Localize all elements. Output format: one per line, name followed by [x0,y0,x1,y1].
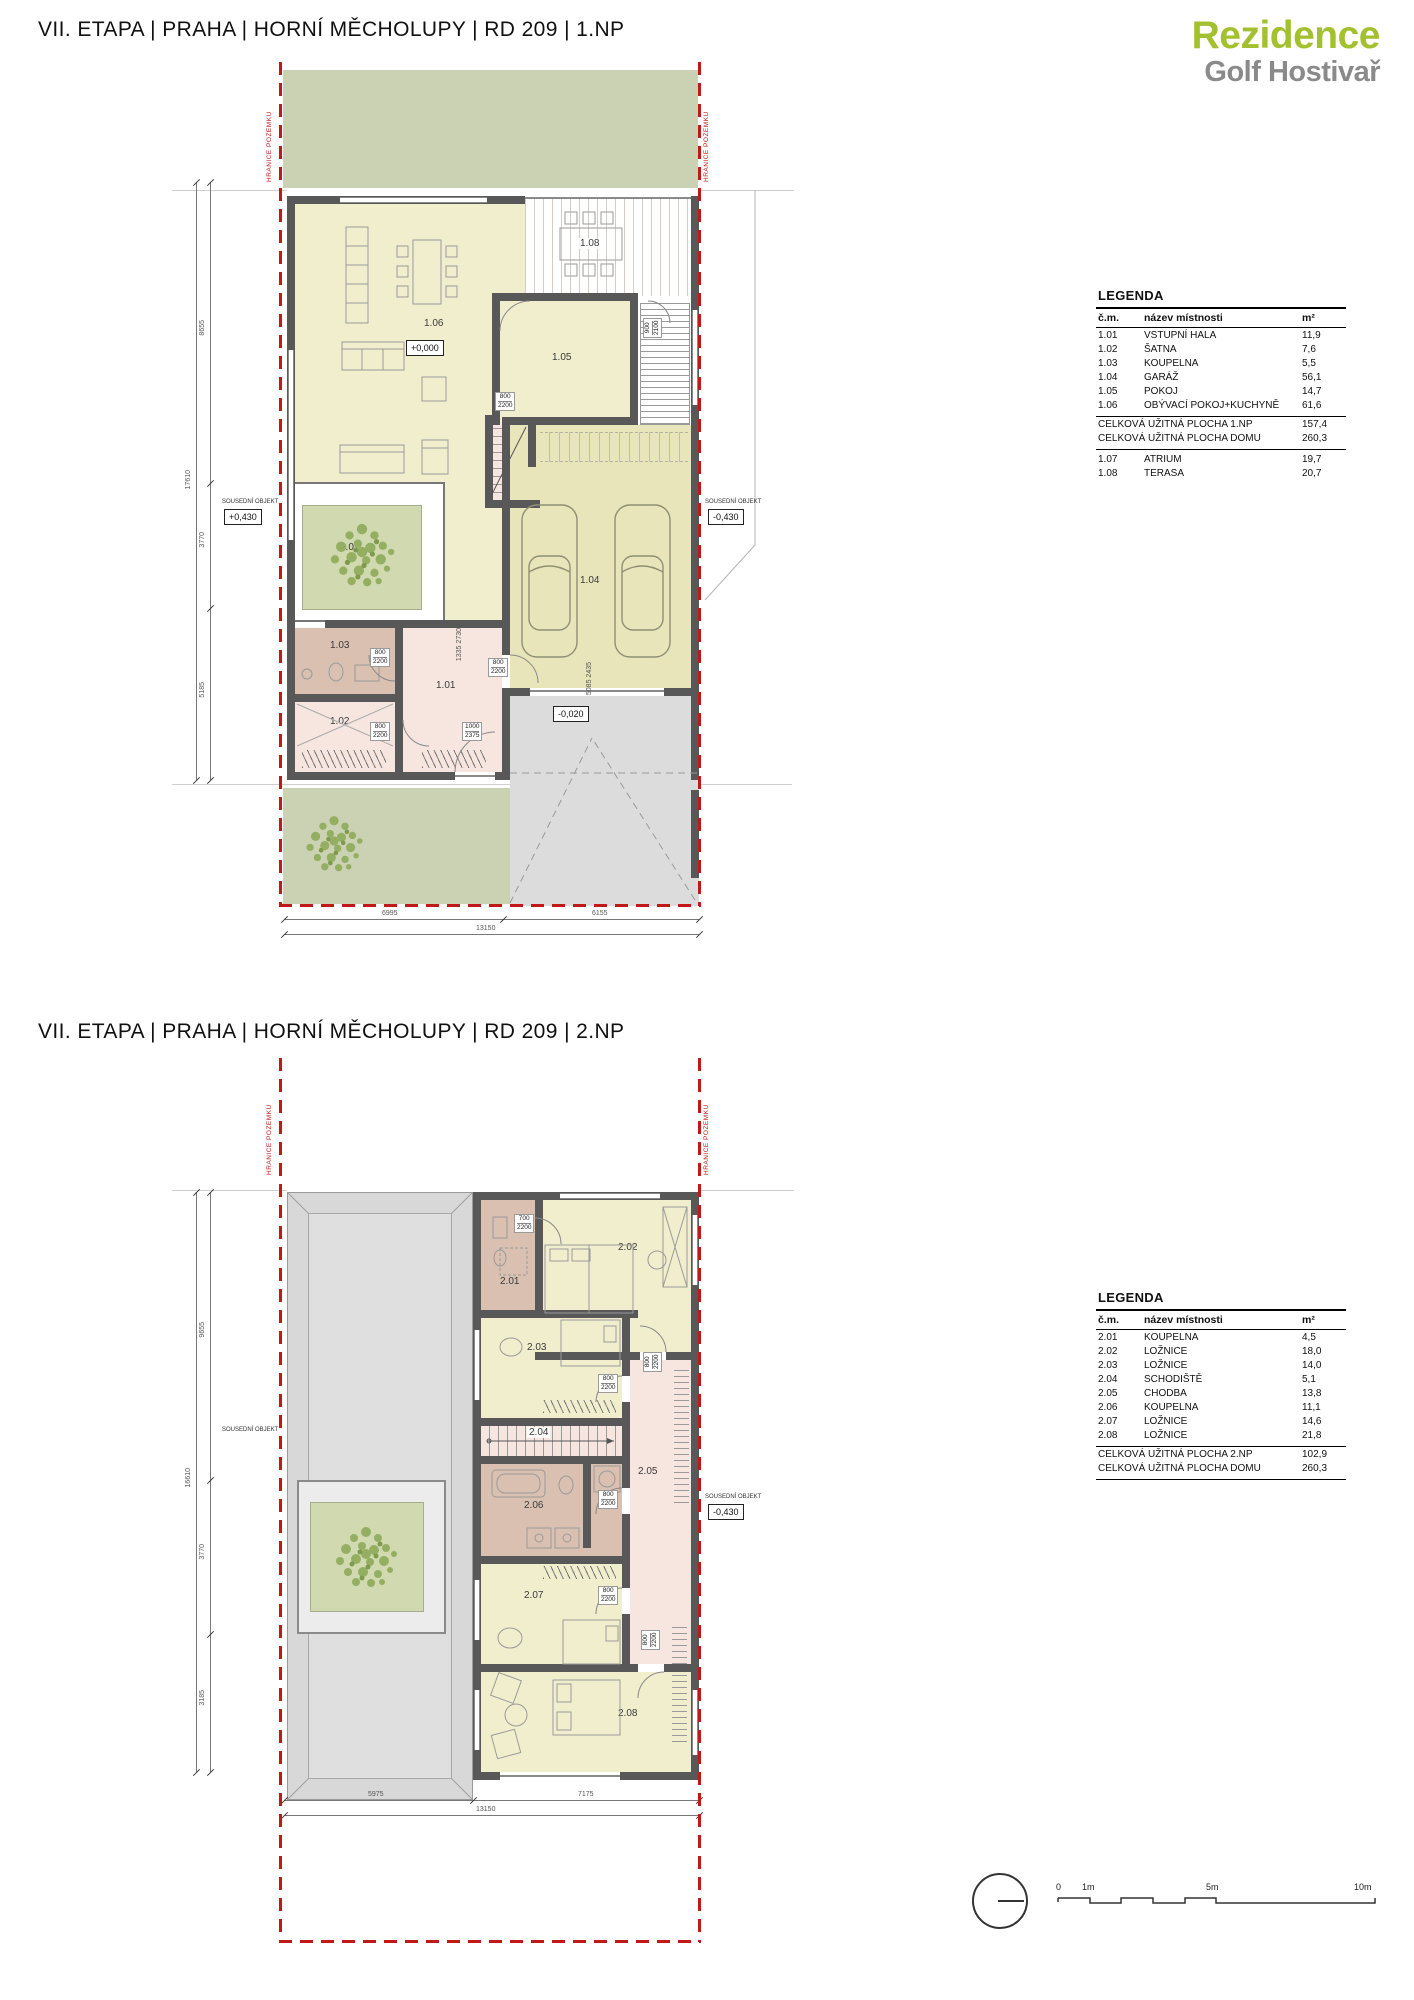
legend-row: 1.04GARÁŽ56,1 [1096,370,1346,384]
legend-row: 2.07LOŽNICE14,6 [1096,1414,1346,1428]
scale-tick-label: 10m [1354,1882,1372,1892]
level-box-zero: +0,000 [406,340,444,356]
door-size-label: 8002200 [495,392,515,411]
legend-row: 2.03LOŽNICE14,0 [1096,1358,1346,1372]
boundary-label-left: HRANICE POZEMKU [266,1085,273,1175]
plan1-linework [180,60,780,960]
legend-total-row: CELKOVÁ UŽITNÁ PLOCHA 1.NP157,4 [1096,416,1346,431]
brand-logo: Rezidence Golf Hostivař [1192,16,1380,87]
level-box-right: -0,430 [708,1504,744,1520]
north-symbol [972,1873,1028,1929]
door-size-label: 10002375 [462,722,482,741]
legend-total-row: CELKOVÁ UŽITNÁ PLOCHA DOMU260,3 [1096,431,1346,445]
plan2-title: VII. ETAPA | PRAHA | HORNÍ MĚCHOLUPY | R… [38,1020,624,1044]
legend-row: 2.06KOUPELNA11,1 [1096,1400,1346,1414]
level-box-left: +0,430 [224,509,262,525]
legend-row: 2.08LOŽNICE21,8 [1096,1428,1346,1442]
level-box-right: -0,430 [708,509,744,525]
door-size-label: 8002200 [598,1374,618,1393]
door-size-label: 8002200 [643,1352,662,1372]
legend-1np: LEGENDA č.m. název místnosti m² 1.01VSTU… [1096,288,1346,481]
scale-bar: 0 1m 5m 10m [1058,1882,1378,1914]
legend-row: 1.03KOUPELNA5,5 [1096,356,1346,370]
legend-row: 1.05POKOJ14,7 [1096,384,1346,398]
legend-footer-rule [1096,1475,1346,1480]
legend-row: 2.01KOUPELNA4,5 [1096,1330,1346,1344]
property-boundary-bottom [279,904,701,907]
drawing-sheet: VII. ETAPA | PRAHA | HORNÍ MĚCHOLUPY | R… [0,0,1414,2000]
legend-total-row: CELKOVÁ UŽITNÁ PLOCHA DOMU260,3 [1096,1461,1346,1475]
scale-bar-graphic [1058,1894,1378,1910]
boundary-label-right: HRANICE POZEMKU [703,92,710,182]
door-size-label: 8002200 [488,658,508,677]
property-boundary-right [698,1058,701,1942]
scale-tick-label: 5m [1206,1882,1219,1892]
boundary-label-right: HRANICE POZEMKU [703,1085,710,1175]
door-size-label: 8002200 [370,648,390,667]
legend-header-row: č.m. název místnosti m² [1096,307,1346,328]
door-size-label: 8002200 [370,722,390,741]
legend-row: 2.05CHODBA13,8 [1096,1386,1346,1400]
legend-heading: LEGENDA [1098,1290,1346,1305]
legend-row: 1.08TERASA20,7 [1096,467,1346,481]
neighbor-label-right: SOUSEDNÍ OBJEKT [705,1494,761,1500]
neighbor-label-right: SOUSEDNÍ OBJEKT [705,499,761,505]
legend-row: 1.02ŠATNA7,6 [1096,342,1346,356]
plan1-title: VII. ETAPA | PRAHA | HORNÍ MĚCHOLUPY | R… [38,18,624,42]
logo-line1: Rezidence [1192,16,1380,57]
property-boundary-left [279,1058,282,1942]
neighbor-label-left: SOUSEDNÍ OBJEKT [222,1427,278,1433]
legend-total-row: CELKOVÁ UŽITNÁ PLOCHA 2.NP102,9 [1096,1446,1346,1461]
scale-tick-label: 1m [1082,1882,1095,1892]
legend-row: 2.04SCHODIŠTĚ5,1 [1096,1372,1346,1386]
legend-header-row: č.m. název místnosti m² [1096,1309,1346,1330]
property-boundary-bottom [279,1940,701,1943]
legend-row: 2.02LOŽNICE18,0 [1096,1344,1346,1358]
property-boundary-left [279,62,282,906]
legend-2np: LEGENDA č.m. název místnosti m² 2.01KOUP… [1096,1290,1346,1480]
legend-row: 1.01VSTUPNÍ HALA11,9 [1096,328,1346,342]
level-box-entry: -0,020 [553,706,589,722]
north-needle [998,1900,1024,1902]
boundary-label-left: HRANICE POZEMKU [266,92,273,182]
door-size-label: 8002200 [598,1490,618,1509]
property-boundary-right [698,62,701,906]
plan2-linework [180,1050,780,1950]
legend-row: 1.07ATRIUM19,7 [1096,449,1346,467]
legend-heading: LEGENDA [1098,288,1346,303]
door-size-label: 8002200 [641,1630,660,1650]
door-size-label: 8002200 [598,1586,618,1605]
door-size-label: 9002100 [643,318,662,338]
scale-tick-label: 0 [1056,1882,1061,1892]
door-size-label: 7002200 [514,1214,534,1233]
legend-row: 1.06OBÝVACÍ POKOJ+KUCHYNĚ61,6 [1096,398,1346,412]
logo-line2: Golf Hostivař [1192,57,1380,87]
neighbor-label-left: SOUSEDNÍ OBJEKT [222,499,278,505]
